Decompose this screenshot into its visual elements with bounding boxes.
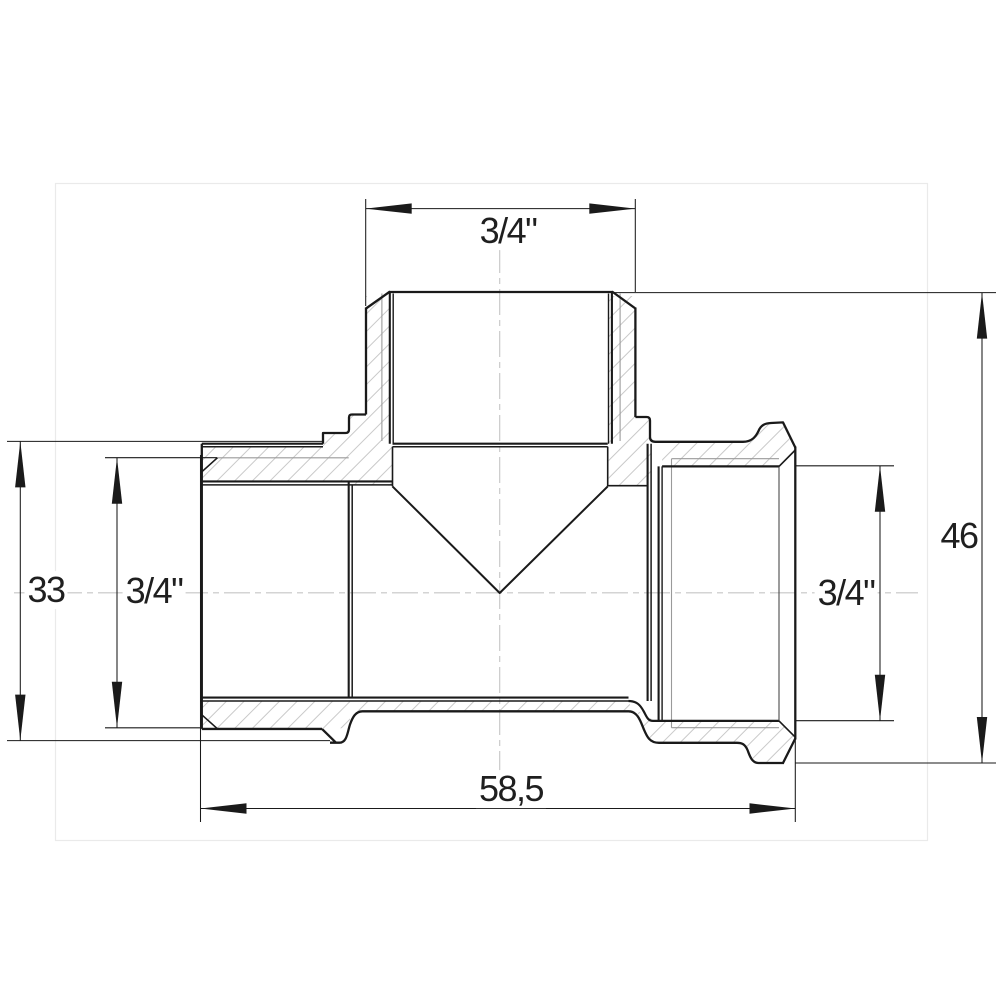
- dimension-right-thread-label: 3/4": [815, 574, 878, 612]
- technical-drawing-canvas: [0, 0, 1000, 1000]
- drawing-page: 3/4" 33 3/4" 3/4" 46 58,5: [0, 0, 1000, 1000]
- arrow-up-icon: [875, 466, 885, 512]
- hatch-top-left: [202, 296, 393, 486]
- arrow-left-icon: [201, 803, 247, 813]
- arrow-right-icon: [750, 803, 796, 813]
- arrow-down-icon: [112, 682, 122, 728]
- dimension-overall-length-label: 58,5: [476, 770, 546, 808]
- arrow-up-icon: [15, 441, 25, 487]
- hatch-bottom-left: [202, 701, 350, 728]
- dimension-overall-length: [201, 450, 796, 822]
- background-frame: [56, 184, 928, 841]
- hatch-bottom-right: [637, 712, 795, 762]
- dimension-right-outer-label: 46: [937, 517, 980, 555]
- hatch-bottom-waist: [350, 701, 634, 711]
- arrow-left-icon: [366, 203, 412, 213]
- arrow-right-icon: [589, 203, 635, 213]
- dimension-left-outer-label: 33: [24, 571, 67, 609]
- section-hatch-regions: [202, 296, 795, 762]
- thread-lines: [218, 294, 780, 728]
- fitting-outline: [202, 292, 796, 764]
- dimension-top-thread-label: 3/4": [477, 212, 540, 250]
- arrow-up-icon: [112, 458, 122, 504]
- arrow-down-icon: [977, 717, 987, 763]
- dimension-left-thread-label: 3/4": [123, 572, 186, 610]
- hatch-top-right-branch: [609, 296, 652, 486]
- arrow-down-icon: [15, 695, 25, 741]
- arrow-down-icon: [875, 675, 885, 721]
- arrow-up-icon: [977, 293, 987, 339]
